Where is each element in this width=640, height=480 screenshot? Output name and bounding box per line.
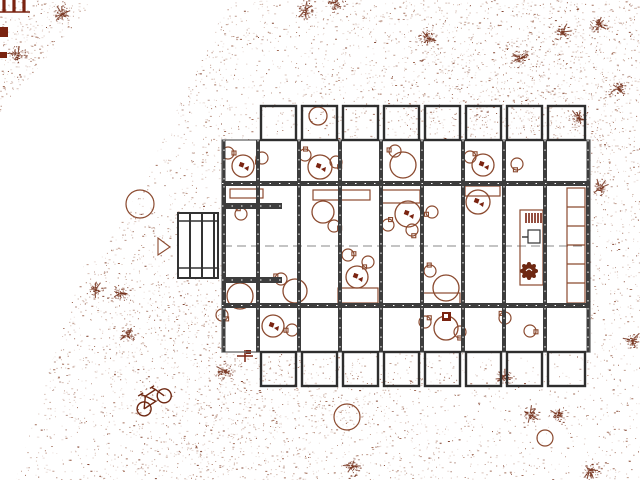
balcony-bottom: [384, 352, 419, 386]
floor-plan-viewport: [0, 0, 640, 480]
balcony-top: [507, 106, 542, 140]
balcony-top: [343, 106, 378, 140]
balcony-top: [261, 106, 296, 140]
table-icon: [309, 107, 327, 125]
balcony-bottom: [302, 352, 337, 386]
balcony-top: [466, 106, 501, 140]
plant-icon: [520, 262, 538, 280]
balcony-bottom: [261, 352, 296, 386]
balcony-top: [302, 106, 337, 140]
balcony-bottom: [466, 352, 501, 386]
tree-canopy-icon: [537, 430, 553, 446]
site-plan-svg: [0, 0, 640, 480]
balcony-bottom: [425, 352, 460, 386]
balcony-bottom: [507, 352, 542, 386]
triangle-marker-icon: [158, 238, 170, 255]
dark-box-inner: [444, 314, 448, 318]
tree-canopy-icon: [334, 404, 360, 430]
balcony-bottom: [343, 352, 378, 386]
exterior-stair: [178, 213, 218, 278]
white-masks: [0, 0, 590, 480]
